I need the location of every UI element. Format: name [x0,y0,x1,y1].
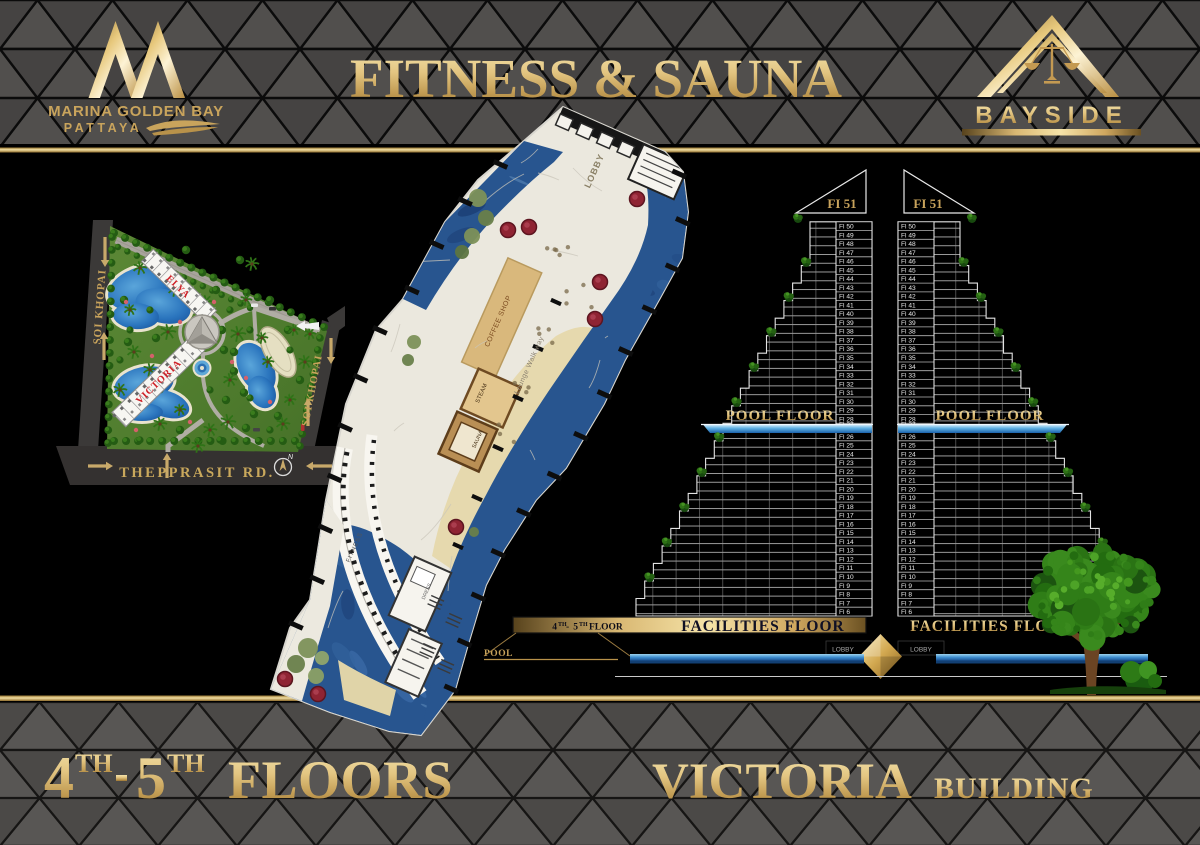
svg-text:Fl 42: Fl 42 [839,294,854,301]
svg-text:Fl 9: Fl 9 [839,583,850,590]
svg-text:TH: TH [75,749,113,778]
svg-text:Fl 34: Fl 34 [839,364,854,371]
svg-text:Fl 26: Fl 26 [839,434,854,441]
svg-text:Fl 36: Fl 36 [839,346,854,353]
svg-text:BUILDING: BUILDING [934,772,1094,805]
svg-text:Fl 12: Fl 12 [839,557,854,564]
svg-text:Fl 31: Fl 31 [839,390,854,397]
svg-text:4: 4 [44,745,74,811]
svg-text:MARINA GOLDEN BAY: MARINA GOLDEN BAY [48,103,224,120]
svg-text:Fl 45: Fl 45 [901,267,916,274]
svg-text:Fl 6: Fl 6 [839,609,850,616]
svg-text:BAYSIDE: BAYSIDE [975,102,1128,129]
svg-text:FLOOR: FLOOR [589,623,623,633]
svg-text:LOBBY: LOBBY [910,647,932,654]
svg-text:Fl 11: Fl 11 [839,565,854,572]
svg-text:Fl 41: Fl 41 [839,302,854,309]
svg-text:Fl 39: Fl 39 [901,320,916,327]
svg-text:FACILITIES FLOOR: FACILITIES FLOOR [681,618,844,635]
svg-text:Fl 31: Fl 31 [901,390,916,397]
svg-text:Fl 49: Fl 49 [901,232,916,239]
svg-text:Fl 44: Fl 44 [901,276,916,283]
svg-text:TH: TH [167,749,205,778]
svg-text:Fl 32: Fl 32 [901,381,916,388]
svg-text:Fl 18: Fl 18 [839,504,854,511]
svg-text:Fl 50: Fl 50 [901,224,916,231]
svg-text:Fl 24: Fl 24 [901,451,916,458]
svg-text:FLOORS: FLOORS [228,750,453,810]
svg-text:Fl 37: Fl 37 [901,338,916,345]
svg-text:Fl 37: Fl 37 [839,338,854,345]
svg-text:FI 51: FI 51 [827,196,856,211]
svg-text:Fl 38: Fl 38 [839,329,854,336]
svg-text:Fl 29: Fl 29 [839,408,854,415]
svg-text:Fl 35: Fl 35 [839,355,854,362]
svg-text:Fl 19: Fl 19 [901,495,916,502]
svg-text:Fl 38: Fl 38 [901,329,916,336]
svg-text:Fl 14: Fl 14 [901,539,916,546]
svg-text:Fl 46: Fl 46 [901,259,916,266]
svg-text:Fl 19: Fl 19 [839,495,854,502]
svg-text:Fl 50: Fl 50 [839,224,854,231]
svg-text:Fl 25: Fl 25 [901,443,916,450]
svg-text:POOL FLOOR: POOL FLOOR [726,408,835,424]
svg-text:Fl 13: Fl 13 [901,548,916,555]
svg-text:PATTAYA: PATTAYA [64,121,142,135]
svg-text:Fl 43: Fl 43 [901,285,916,292]
svg-text:Fl 7: Fl 7 [839,600,850,607]
svg-text:Fl 15: Fl 15 [901,530,916,537]
svg-text:Fl 7: Fl 7 [901,600,912,607]
svg-text:Fl 9: Fl 9 [901,583,912,590]
svg-text:FITNESS & SAUNA: FITNESS & SAUNA [350,48,842,109]
svg-text:Fl 43: Fl 43 [839,285,854,292]
svg-text:FI 51: FI 51 [913,196,942,211]
svg-text:Fl 10: Fl 10 [839,574,854,581]
svg-text:Fl 16: Fl 16 [901,521,916,528]
svg-text:Fl 47: Fl 47 [901,250,916,257]
svg-text:-: - [566,623,569,633]
svg-text:Fl 34: Fl 34 [901,364,916,371]
svg-text:Fl 45: Fl 45 [839,267,854,274]
svg-text:Fl 48: Fl 48 [839,241,854,248]
svg-text:Fl 22: Fl 22 [839,469,854,476]
svg-text:Fl 15: Fl 15 [839,530,854,537]
svg-text:Fl 36: Fl 36 [901,346,916,353]
svg-text:Fl 25: Fl 25 [839,443,854,450]
svg-text:Fl 40: Fl 40 [839,311,854,318]
svg-text:Fl 28: Fl 28 [901,416,916,423]
svg-text:THEPPRASIT RD.: THEPPRASIT RD. [119,465,275,481]
svg-text:POOL: POOL [484,649,513,659]
svg-text:Fl 24: Fl 24 [839,451,854,458]
svg-text:Fl 13: Fl 13 [839,548,854,555]
svg-text:Fl 48: Fl 48 [901,241,916,248]
svg-text:Fl 29: Fl 29 [901,408,916,415]
svg-text:Fl 30: Fl 30 [839,399,854,406]
svg-text:Fl 17: Fl 17 [839,513,854,520]
svg-text:LOBBY: LOBBY [832,647,854,654]
svg-text:Fl 21: Fl 21 [901,478,916,485]
svg-text:Fl 12: Fl 12 [901,557,916,564]
svg-text:Fl 35: Fl 35 [901,355,916,362]
svg-text:Fl 49: Fl 49 [839,232,854,239]
svg-text:Fl 23: Fl 23 [839,460,854,467]
svg-text:Fl 23: Fl 23 [901,460,916,467]
svg-text:Fl 33: Fl 33 [901,373,916,380]
svg-text:4: 4 [552,623,557,633]
svg-text:5: 5 [573,623,578,633]
svg-text:Fl 33: Fl 33 [839,373,854,380]
svg-text:Fl 11: Fl 11 [901,565,916,572]
svg-text:POOL FLOOR: POOL FLOOR [936,408,1045,424]
svg-text:Fl 20: Fl 20 [839,486,854,493]
svg-text:Fl 32: Fl 32 [839,381,854,388]
svg-text:Fl 14: Fl 14 [839,539,854,546]
svg-text:Fl 21: Fl 21 [839,478,854,485]
svg-text:VICTORIA: VICTORIA [652,754,912,810]
svg-text:Fl 18: Fl 18 [901,504,916,511]
svg-text:Fl 28: Fl 28 [839,416,854,423]
svg-text:Fl 17: Fl 17 [901,513,916,520]
svg-text:Fl 6: Fl 6 [901,609,912,616]
svg-text:Fl 8: Fl 8 [901,592,912,599]
svg-text:TH: TH [579,622,588,628]
svg-text:Fl 30: Fl 30 [901,399,916,406]
svg-text:Fl 39: Fl 39 [839,320,854,327]
svg-text:Fl 20: Fl 20 [901,486,916,493]
svg-text:Fl 16: Fl 16 [839,521,854,528]
svg-text:Fl 40: Fl 40 [901,311,916,318]
svg-text:5: 5 [136,745,166,811]
svg-text:Fl 41: Fl 41 [901,302,916,309]
svg-text:Fl 47: Fl 47 [839,250,854,257]
svg-text:Fl 26: Fl 26 [901,434,916,441]
svg-text:Fl 10: Fl 10 [901,574,916,581]
svg-text:Fl 42: Fl 42 [901,294,916,301]
svg-text:Fl 22: Fl 22 [901,469,916,476]
svg-text:Fl 46: Fl 46 [839,259,854,266]
svg-text:Fl 44: Fl 44 [839,276,854,283]
svg-text:Fl 8: Fl 8 [839,592,850,599]
